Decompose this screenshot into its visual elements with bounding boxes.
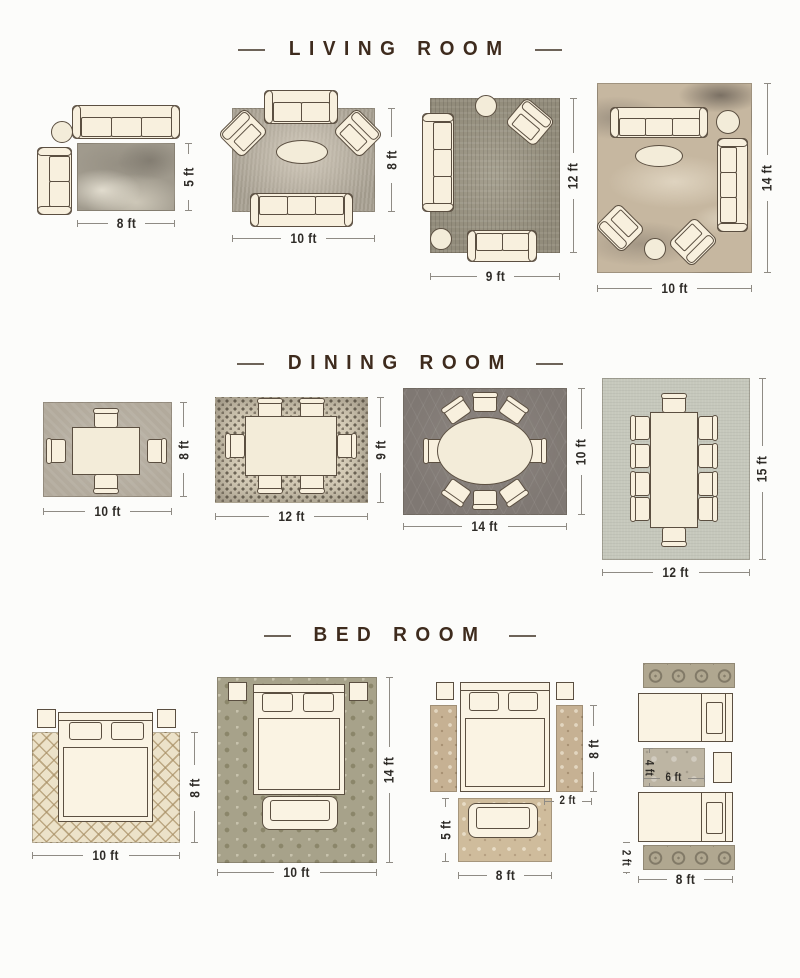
dining-chair — [662, 395, 686, 413]
dimension-label: 2 ft — [556, 795, 579, 807]
bed — [460, 682, 550, 792]
dimension-label: 8 ft — [110, 215, 141, 231]
dimension-runner-width: 2 ft — [544, 795, 592, 807]
dimension-label: 10 ft — [655, 280, 694, 296]
section-title-living-room: LIVING ROOM — [0, 38, 800, 61]
section-title-text: BED ROOM — [314, 624, 487, 647]
dining-chair — [632, 444, 650, 468]
sofa-cushions — [434, 122, 451, 203]
runner-rug — [430, 705, 457, 792]
nightstand — [436, 682, 454, 700]
pillow — [508, 692, 538, 711]
side-table — [51, 121, 73, 143]
mattress — [258, 718, 340, 790]
runner-rug — [643, 663, 735, 688]
dimension-label: 10 ft — [278, 864, 317, 880]
bench — [262, 796, 338, 830]
section-title-text: DINING ROOM — [288, 352, 513, 375]
dimension-label: 12 ft — [657, 564, 696, 580]
dimension-height: 5 ft — [180, 143, 196, 211]
side-table — [430, 228, 452, 250]
headboard — [725, 694, 732, 741]
nightstand — [157, 709, 176, 728]
dimension-height: 8 ft — [585, 705, 601, 792]
runner-rug — [643, 845, 735, 870]
dimension-label: 12 ft — [272, 508, 311, 524]
bench-seat — [270, 800, 330, 821]
dimension-label: 6 ft — [662, 772, 685, 784]
dimension-width: 14 ft — [403, 520, 567, 532]
section-title-text: LIVING ROOM — [289, 38, 511, 61]
dimension-height: 14 ft — [759, 83, 775, 273]
nightstand — [37, 709, 56, 728]
dimension-label: 8 ft — [368, 150, 414, 170]
title-dash-right — [535, 49, 562, 51]
dining-chair — [632, 472, 650, 496]
mattress-divider — [701, 694, 702, 741]
dimension-width: 8 ft — [458, 869, 552, 881]
dining-chair — [48, 439, 66, 463]
pillow — [706, 702, 723, 734]
dimension-width: 12 ft — [215, 510, 368, 522]
rug-size-guide: LIVING ROOM 5 ft 8 ft 8 ft 10 ft — [0, 0, 800, 978]
headboard — [461, 683, 549, 691]
sofa-cushions — [81, 117, 171, 136]
dimension-label: 5 ft — [422, 820, 468, 840]
dimension-width: 9 ft — [430, 270, 560, 282]
dimension-label: 10 ft — [88, 503, 127, 519]
title-dash-left — [237, 363, 264, 365]
dimension-width: 8 ft — [77, 217, 175, 229]
dimension-label: 12 ft — [550, 162, 596, 189]
headboard — [725, 793, 732, 841]
title-dash-left — [264, 635, 291, 637]
dining-chair — [94, 474, 118, 492]
dimension-runner-height: 2 ft — [618, 842, 634, 873]
pillow — [706, 802, 723, 834]
loveseat — [467, 230, 537, 262]
dimension-height: 12 ft — [565, 98, 581, 253]
dimension-foot-height: 5 ft — [437, 798, 453, 862]
dimension-label: 14 ft — [466, 518, 505, 534]
dimension-label: 10 ft — [87, 847, 126, 863]
side-table — [475, 95, 497, 117]
headboard — [254, 685, 344, 693]
dining-table — [72, 427, 140, 475]
dimension-width: 8 ft — [638, 873, 733, 885]
dining-chair — [94, 410, 118, 428]
section-title-bed-room: BED ROOM — [0, 624, 800, 647]
dimension-label: 8 ft — [160, 440, 206, 460]
sofa-cushions — [476, 233, 528, 250]
rug — [77, 143, 175, 211]
headboard — [59, 713, 152, 721]
dimension-height: 8 ft — [383, 108, 399, 212]
nightstand — [228, 682, 247, 701]
dining-chair — [698, 472, 716, 496]
sofa-cushions — [259, 196, 344, 215]
pillow — [262, 693, 293, 712]
dimension-width: 10 ft — [43, 505, 172, 517]
dimension-label: 8 ft — [670, 871, 701, 887]
dimension-height: 15 ft — [754, 378, 770, 560]
nightstand — [556, 682, 574, 700]
sofa — [422, 113, 454, 212]
pillow — [303, 693, 334, 712]
dining-chair — [473, 394, 497, 412]
dimension-label: 8 ft — [489, 867, 520, 883]
dimension-label: 14 ft — [744, 165, 790, 192]
section-title-dining-room: DINING ROOM — [0, 352, 800, 375]
sofa-cushions — [720, 147, 737, 223]
twin-bed — [638, 792, 733, 842]
dimension-width: 10 ft — [32, 849, 180, 861]
coffee-table — [635, 145, 683, 167]
dimension-label: 8 ft — [171, 778, 217, 798]
dining-chair — [698, 416, 716, 440]
dimension-height: 14 ft — [381, 677, 397, 863]
twin-bed — [638, 693, 733, 742]
dining-chair — [632, 416, 650, 440]
dimension-width: 10 ft — [232, 232, 375, 244]
sofa — [72, 105, 180, 139]
sofa-cushions — [50, 156, 69, 206]
dining-chair — [632, 497, 650, 521]
dimension-label: 10 ft — [284, 230, 323, 246]
title-dash-right — [536, 363, 563, 365]
dining-chair — [698, 497, 716, 521]
dining-chair — [698, 444, 716, 468]
bed — [58, 712, 153, 822]
pillow — [69, 722, 102, 740]
sofa-cushions — [619, 118, 699, 135]
dimension-label: 10 ft — [558, 438, 604, 465]
title-dash-right — [509, 635, 536, 637]
dimension-width: 12 ft — [602, 566, 750, 578]
mattress-divider — [701, 793, 702, 841]
dimension-mid-width: 6 ft — [643, 772, 705, 784]
pillow — [111, 722, 144, 740]
dimension-label: 9 ft — [357, 440, 403, 460]
dimension-label: 8 ft — [570, 739, 616, 759]
title-dash-left — [238, 49, 265, 51]
loveseat — [37, 147, 72, 215]
dimension-label: 9 ft — [479, 268, 510, 284]
dimension-label: 14 ft — [366, 757, 412, 784]
sofa-cushions — [273, 102, 329, 121]
sofa — [610, 107, 708, 138]
dimension-height: 8 ft — [186, 732, 202, 843]
side-table — [716, 110, 740, 134]
dimension-label: 2 ft — [611, 849, 641, 865]
dimension-width: 10 ft — [217, 866, 377, 878]
dining-table — [245, 416, 337, 476]
mattress — [63, 747, 148, 817]
dimension-height: 10 ft — [573, 388, 589, 515]
sofa — [250, 193, 353, 227]
mattress — [465, 718, 545, 787]
bed — [253, 684, 345, 795]
pillow — [469, 692, 499, 711]
dimension-height: 8 ft — [175, 402, 191, 497]
nightstand — [713, 752, 732, 783]
dining-chair — [662, 527, 686, 545]
dimension-label: 15 ft — [739, 456, 785, 483]
dining-chair — [337, 434, 355, 458]
dimension-height: 9 ft — [372, 397, 388, 503]
dining-chair — [258, 474, 282, 492]
dining-chair — [227, 434, 245, 458]
bench — [468, 803, 538, 838]
dining-chair — [300, 474, 324, 492]
dimension-width: 10 ft — [597, 282, 752, 294]
coffee-table — [276, 140, 328, 164]
bench-seat — [476, 807, 530, 829]
nightstand — [349, 682, 368, 701]
loveseat — [264, 90, 338, 124]
dimension-label: 5 ft — [165, 167, 211, 187]
dining-table — [650, 412, 698, 528]
dining-chair — [473, 490, 497, 508]
side-table — [644, 238, 666, 260]
dining-table-oval — [437, 417, 533, 485]
